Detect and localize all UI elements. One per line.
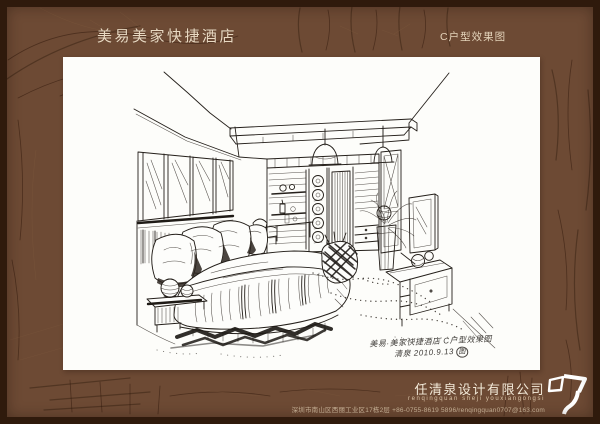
unit-type-label: C户型效果图 xyxy=(440,29,506,44)
company-contact-info: 深圳市南山区西丽工业区17栋2层 +86-0755-8619 5896/renq… xyxy=(292,404,545,414)
hotel-brand-title: 美易美家快捷酒店 xyxy=(97,25,237,46)
signature-seal: 图 xyxy=(456,347,469,359)
company-logo-icon xyxy=(547,371,593,417)
sketch-paper: 美易·美家快捷酒店 C户型效果图 清泉 2010.9.13图 xyxy=(63,57,540,370)
company-name-pinyin: renqingquan sheji youxiangongsi xyxy=(408,396,545,402)
presentation-board: 美易美家快捷酒店 C户型效果图 xyxy=(0,0,600,424)
room-sketch-drawing xyxy=(63,57,540,370)
